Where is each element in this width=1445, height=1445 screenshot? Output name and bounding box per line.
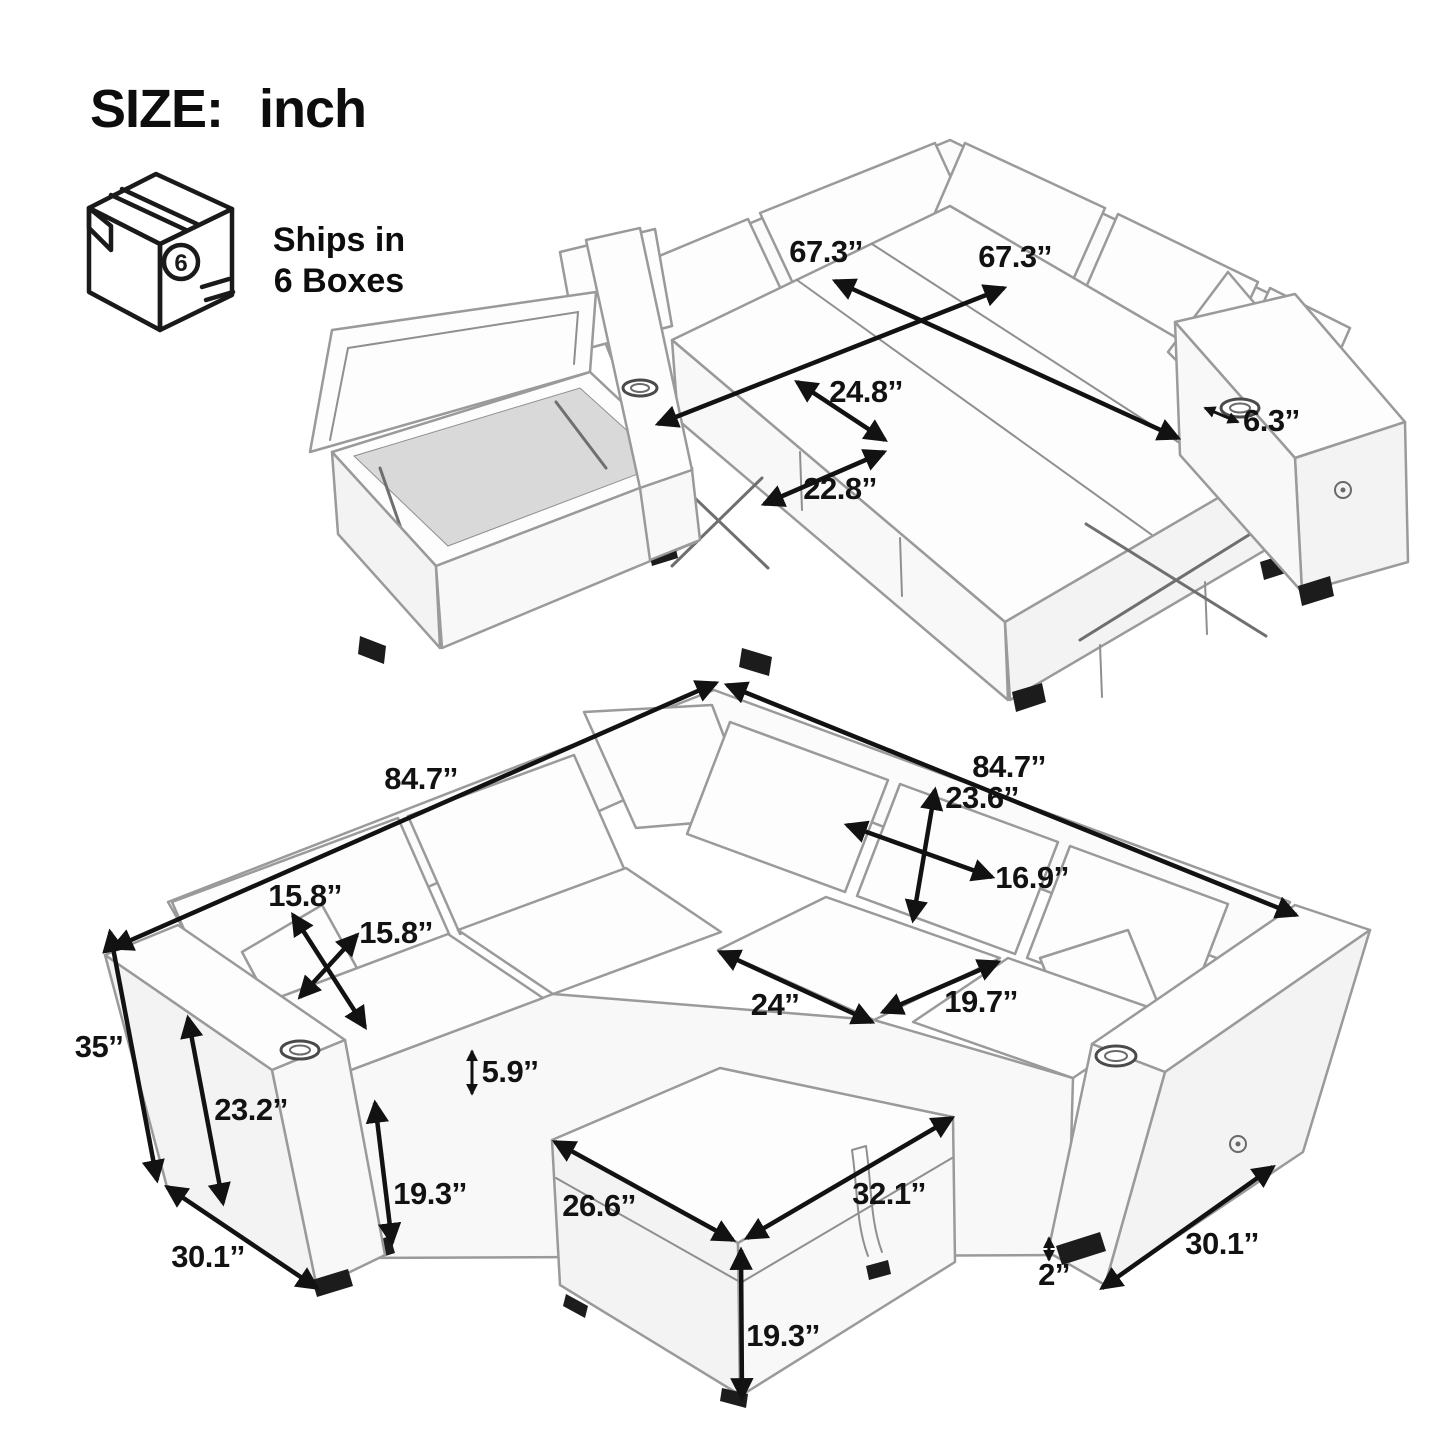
dimension-label: 26.6’’ [562,1188,635,1223]
dimension-label: 23.6’’ [945,780,1018,815]
dimension-label: 67.3’’ [978,239,1051,274]
dimension-label: 15.8’’ [359,915,432,950]
usb-port-icon [1236,1142,1241,1147]
cup-holder-icon [623,380,657,396]
dimension-label: 6.3’’ [1243,403,1300,438]
cup-holder-icon [1096,1046,1136,1066]
dimension-label: 30.1’’ [171,1239,244,1274]
dimension-label: 32.1’’ [852,1176,925,1211]
storage-ottoman [552,1068,955,1408]
top-diagram-sofa-bed-open: 67.3’’ 67.3’’ 24.8’’ 22.8’’ 6.3’’ [310,140,1408,712]
dimension-label: 23.2’’ [214,1092,287,1127]
dimension-label: 67.3’’ [789,234,862,269]
sofa-leg [739,648,772,676]
diagram-canvas: 67.3’’ 67.3’’ 24.8’’ 22.8’’ 6.3’’ [0,0,1445,1445]
dimension-label: 19.3’’ [393,1176,466,1211]
storage-leg [358,636,386,664]
dimension-arrow-ottoman-height [741,1250,742,1398]
dimension-label: 19.7’’ [944,984,1017,1019]
dimension-label: 84.7’’ [384,761,457,796]
dimension-label: 2’’ [1038,1257,1070,1292]
product-dimension-sheet: SIZE:inch 6 Ships in 6 Boxes [0,0,1445,1445]
dimension-label: 22.8’’ [803,471,876,506]
bottom-diagram-sectional-sofa: 84.7’’ 84.7’’ 23.6’’ 16.9’’ 15.8’’ 15.8’… [75,683,1370,1408]
dimension-label: 35’’ [75,1029,124,1064]
dimension-label: 24.8’’ [829,374,902,409]
dimension-label: 5.9’’ [482,1054,539,1089]
usb-port-icon [1341,488,1346,493]
dimension-label: 15.8’’ [268,878,341,913]
dimension-label: 19.3’’ [746,1318,819,1353]
cup-holder-icon [281,1041,319,1059]
dimension-label: 30.1’’ [1185,1226,1258,1261]
dimension-label: 16.9’’ [995,860,1068,895]
dimension-label: 84.7’’ [972,749,1045,784]
dimension-label: 24’’ [751,987,800,1022]
